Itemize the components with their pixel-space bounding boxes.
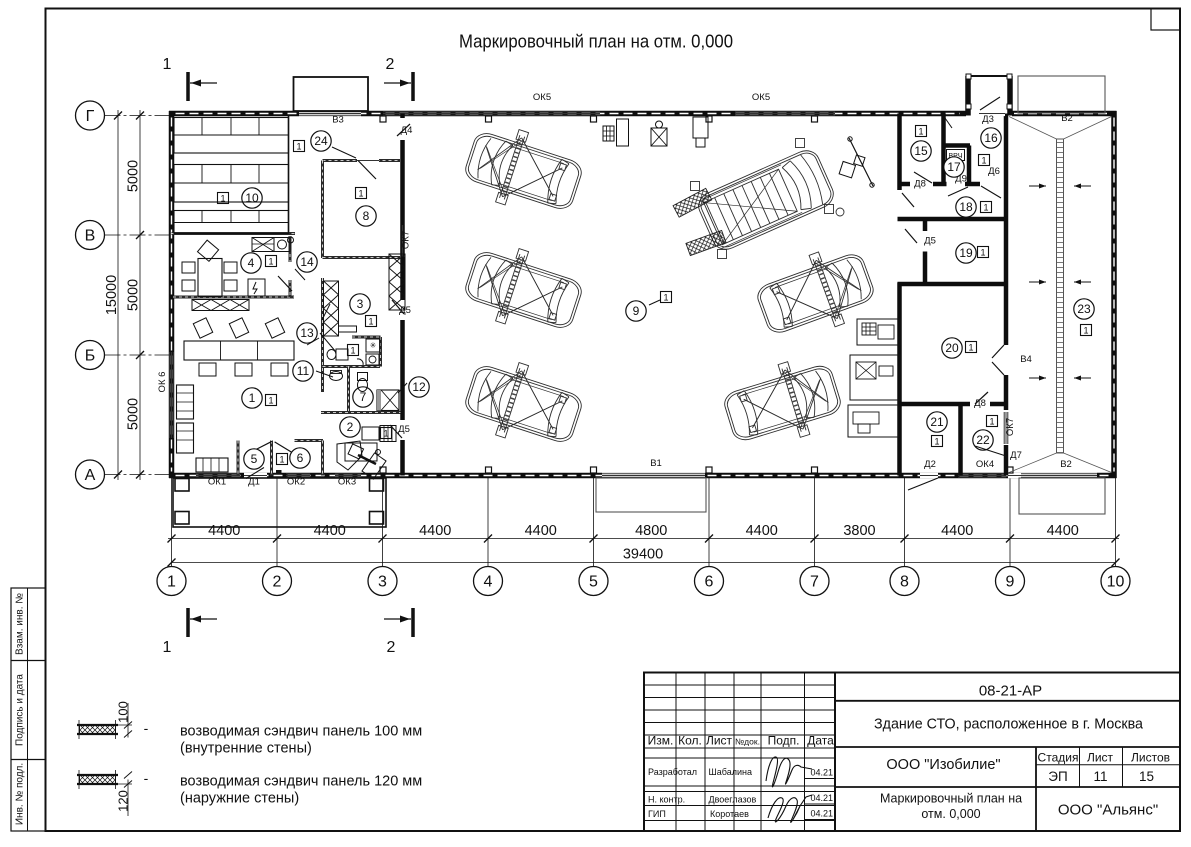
svg-text:1: 1: [249, 391, 256, 405]
svg-text:1: 1: [1083, 326, 1088, 336]
svg-text:№док.: №док.: [735, 737, 760, 747]
svg-text:4400: 4400: [525, 523, 557, 539]
svg-text:04.21: 04.21: [811, 768, 834, 778]
svg-text:ЭП: ЭП: [1048, 769, 1067, 784]
svg-text:4: 4: [248, 256, 255, 270]
svg-text:В1: В1: [650, 458, 662, 469]
svg-text:16: 16: [984, 131, 998, 145]
svg-text:В2: В2: [1061, 113, 1073, 124]
svg-text:14: 14: [300, 255, 314, 269]
svg-text:1: 1: [163, 639, 172, 656]
svg-text:(внутренние стены): (внутренние стены): [180, 741, 312, 757]
svg-text:5: 5: [251, 452, 258, 466]
svg-text:9: 9: [1006, 574, 1015, 591]
svg-text:3: 3: [378, 574, 387, 591]
svg-text:8: 8: [900, 574, 909, 591]
svg-text:Дата: Дата: [807, 734, 834, 748]
svg-text:15: 15: [914, 144, 928, 158]
svg-text:1: 1: [983, 203, 988, 213]
svg-text:Д6: Д6: [988, 166, 1000, 177]
svg-text:5000: 5000: [126, 398, 142, 430]
svg-text:4: 4: [484, 574, 493, 591]
svg-text:Б: Б: [85, 348, 96, 365]
svg-text:Разработал: Разработал: [648, 767, 697, 777]
svg-text:Инв. № подл.: Инв. № подл.: [15, 763, 26, 825]
svg-text:Листов: Листов: [1131, 750, 1170, 764]
svg-text:3800: 3800: [843, 523, 875, 539]
svg-text:1: 1: [163, 56, 172, 73]
svg-text:1: 1: [268, 396, 273, 406]
svg-text:✳: ✳: [370, 341, 377, 350]
svg-text:2: 2: [386, 56, 395, 73]
svg-text:20: 20: [945, 341, 959, 355]
svg-text:1: 1: [167, 574, 176, 591]
svg-text:04.21: 04.21: [811, 793, 834, 803]
svg-text:Д2: Д2: [924, 459, 936, 470]
svg-text:Маркировочный план на: Маркировочный план на: [880, 792, 1022, 806]
svg-text:4400: 4400: [314, 523, 346, 539]
svg-text:Лист: Лист: [1087, 750, 1114, 764]
svg-text:2: 2: [387, 639, 396, 656]
svg-text:ОК4: ОК4: [976, 459, 994, 470]
svg-text:12: 12: [412, 380, 426, 394]
svg-text:Кол.: Кол.: [678, 734, 702, 748]
svg-text:Стадия: Стадия: [1038, 750, 1079, 764]
svg-text:1: 1: [989, 417, 994, 427]
svg-text:4400: 4400: [1047, 523, 1079, 539]
svg-text:1: 1: [368, 317, 373, 327]
svg-text:Д5: Д5: [924, 236, 936, 247]
svg-text:В3: В3: [332, 115, 344, 126]
svg-text:1: 1: [268, 257, 273, 267]
svg-text:ОК5: ОК5: [752, 92, 770, 103]
svg-text:4400: 4400: [208, 523, 240, 539]
svg-text:1: 1: [279, 455, 284, 465]
svg-text:Д1: Д1: [248, 477, 260, 488]
svg-text:Д8: Д8: [974, 398, 986, 409]
svg-text:ООО "Альянс": ООО "Альянс": [1058, 802, 1158, 819]
svg-text:1: 1: [296, 142, 301, 152]
svg-text:ОК7: ОК7: [1005, 418, 1016, 436]
svg-text:ОК2: ОК2: [287, 477, 305, 488]
svg-text:11: 11: [1093, 769, 1107, 784]
svg-text:возводимая сэндвич панель 120: возводимая сэндвич панель 120 мм: [180, 774, 422, 790]
svg-text:ГИП: ГИП: [648, 809, 666, 819]
svg-text:2: 2: [347, 420, 354, 434]
svg-text:Подпись и дата: Подпись и дата: [15, 674, 26, 746]
svg-text:Шабалина: Шабалина: [709, 767, 752, 777]
svg-text:6: 6: [705, 574, 714, 591]
svg-text:19: 19: [959, 246, 973, 260]
svg-text:39400: 39400: [623, 547, 663, 563]
svg-text:Д4: Д4: [401, 125, 413, 136]
svg-text:1: 1: [350, 346, 355, 356]
svg-text:Н. контр.: Н. контр.: [648, 795, 685, 805]
svg-text:1: 1: [918, 127, 923, 137]
svg-text:В4: В4: [1020, 354, 1032, 365]
svg-text:Двоеглазов: Двоеглазов: [709, 795, 757, 805]
svg-text:6: 6: [297, 451, 304, 465]
svg-text:Коротаев: Коротаев: [710, 809, 749, 819]
svg-text:10: 10: [1107, 574, 1125, 591]
svg-text:Д5: Д5: [398, 424, 410, 435]
svg-text:5000: 5000: [126, 160, 142, 192]
svg-text:04.21: 04.21: [811, 809, 834, 819]
svg-text:Лист: Лист: [706, 734, 733, 748]
svg-text:4400: 4400: [746, 523, 778, 539]
svg-text:3: 3: [357, 297, 364, 311]
svg-text:1: 1: [358, 189, 363, 199]
svg-text:23: 23: [1077, 302, 1091, 316]
svg-text:21: 21: [930, 415, 944, 429]
svg-text:8: 8: [363, 209, 370, 223]
svg-text:22: 22: [976, 433, 990, 447]
svg-text:15: 15: [1139, 769, 1154, 784]
svg-text:18: 18: [959, 200, 973, 214]
svg-text:1: 1: [663, 293, 668, 303]
svg-text:(наружние стены): (наружние стены): [180, 791, 299, 807]
svg-text:1: 1: [934, 437, 939, 447]
svg-text:возводимая сэндвич панель 100: возводимая сэндвич панель 100 мм: [180, 724, 422, 740]
svg-text:Г: Г: [86, 108, 95, 125]
svg-text:Взам. инв. №: Взам. инв. №: [15, 593, 26, 655]
svg-text:24: 24: [314, 134, 328, 148]
svg-text:-: -: [144, 720, 149, 736]
svg-text:Д8: Д8: [914, 179, 926, 190]
svg-text:1: 1: [968, 343, 973, 353]
svg-text:Изм.: Изм.: [648, 734, 674, 748]
svg-text:ОК7: ОК7: [401, 231, 412, 249]
svg-text:1: 1: [980, 248, 985, 258]
svg-text:5000: 5000: [126, 279, 142, 311]
svg-text:10: 10: [245, 191, 259, 205]
svg-text:9: 9: [633, 304, 640, 318]
svg-text:4400: 4400: [941, 523, 973, 539]
svg-text:Д3: Д3: [982, 114, 994, 125]
svg-text:17: 17: [947, 160, 961, 174]
svg-text:А: А: [85, 467, 96, 484]
svg-text:08-21-АР: 08-21-АР: [979, 683, 1042, 700]
svg-text:-: -: [144, 770, 149, 786]
svg-text:ОК 6: ОК 6: [157, 372, 168, 393]
svg-text:120: 120: [116, 790, 131, 812]
svg-text:Д7: Д7: [1010, 450, 1022, 461]
svg-text:ОК1: ОК1: [208, 477, 226, 488]
svg-text:отм. 0,000: отм. 0,000: [921, 807, 980, 821]
svg-text:ООО "Изобилие": ООО "Изобилие": [886, 757, 1000, 773]
svg-text:ОК3: ОК3: [338, 477, 356, 488]
svg-text:2: 2: [273, 574, 282, 591]
svg-text:11: 11: [297, 364, 310, 378]
svg-text:ОК5: ОК5: [533, 92, 551, 103]
svg-text:Маркировочный план на отм. 0,0: Маркировочный план на отм. 0,000: [459, 32, 733, 52]
svg-text:4400: 4400: [419, 523, 451, 539]
svg-text:7: 7: [810, 574, 819, 591]
svg-text:В: В: [85, 228, 96, 245]
svg-text:Подп.: Подп.: [768, 734, 800, 748]
svg-text:5: 5: [589, 574, 598, 591]
svg-text:13: 13: [300, 326, 314, 340]
svg-text:7: 7: [360, 390, 367, 404]
svg-text:Здание СТО, расположенное в г.: Здание СТО, расположенное в г. Москва: [874, 717, 1144, 733]
svg-text:100: 100: [116, 701, 131, 723]
svg-text:4800: 4800: [635, 523, 667, 539]
svg-text:15000: 15000: [104, 275, 120, 315]
svg-text:В2: В2: [1060, 459, 1072, 470]
svg-text:1: 1: [981, 156, 986, 166]
